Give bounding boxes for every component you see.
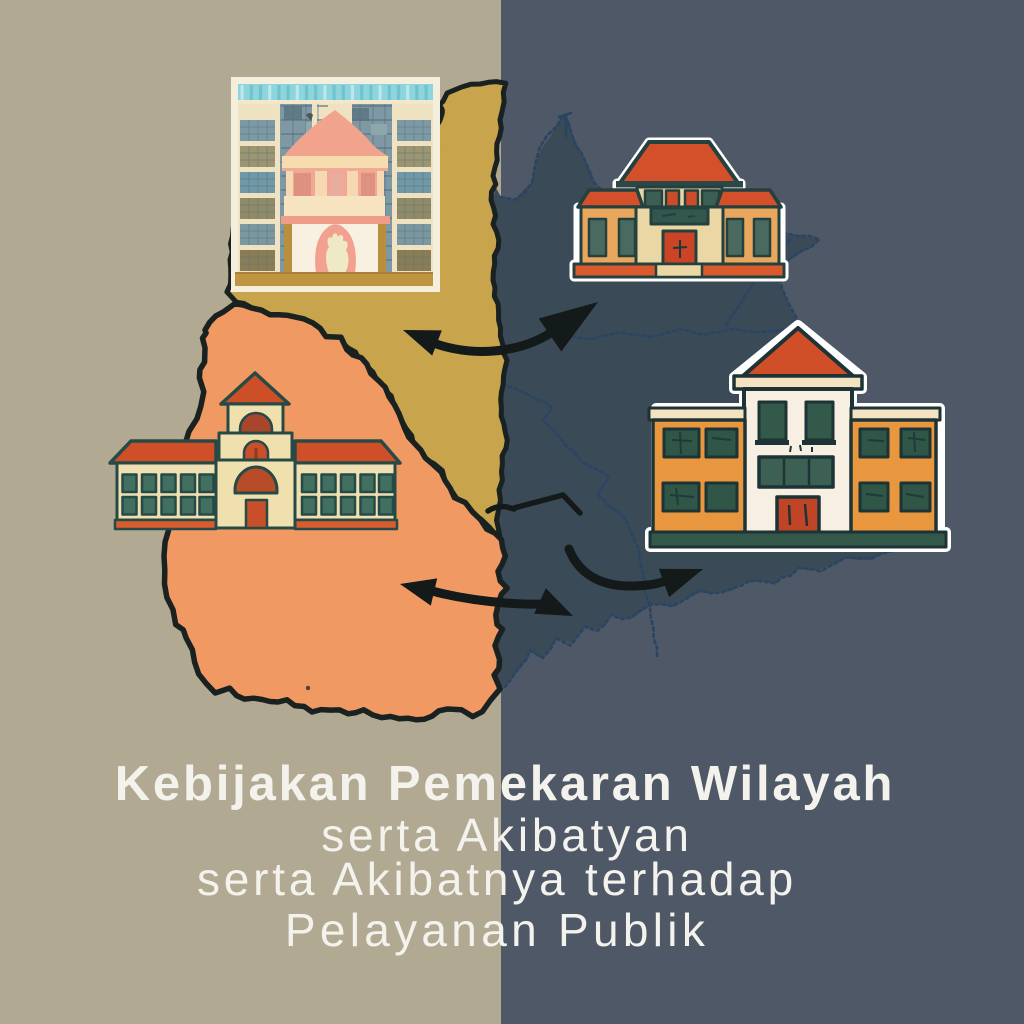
svg-text:serta Akibatnya terhadap: serta Akibatnya terhadap <box>197 853 797 905</box>
svg-text:Pelayanan Publik: Pelayanan Publik <box>285 904 709 956</box>
svg-text:Kebijakan Pemekaran Wilayah: Kebijakan Pemekaran Wilayah <box>115 757 896 811</box>
